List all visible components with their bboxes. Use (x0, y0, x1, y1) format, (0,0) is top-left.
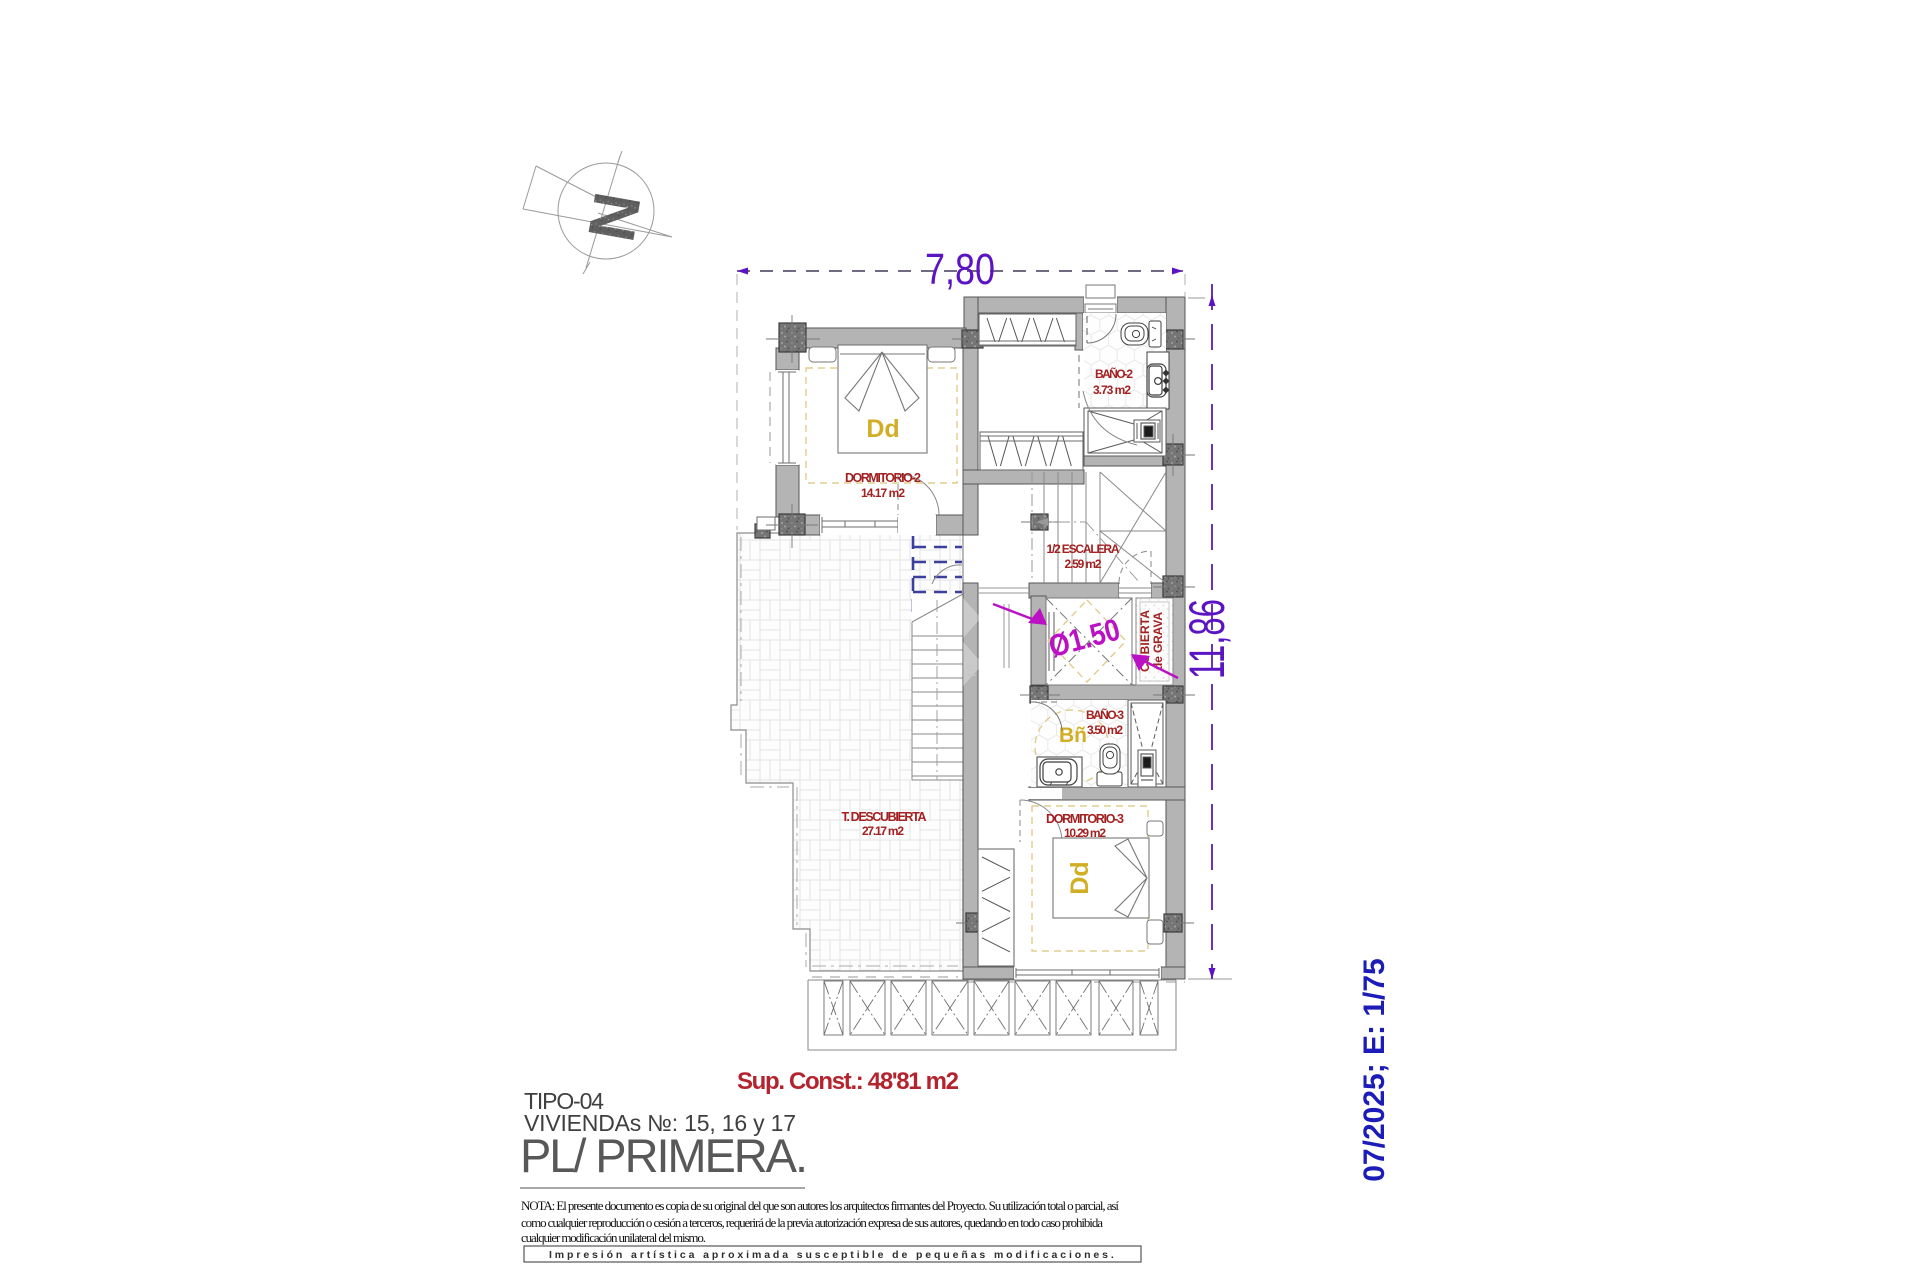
svg-text:3.50 m2: 3.50 m2 (1087, 723, 1123, 737)
svg-text:Impresión artística apro: Impresión artística aproximada susceptib… (549, 1249, 1115, 1261)
svg-text:1/2 ESCALERA: 1/2 ESCALERA (1047, 542, 1120, 556)
svg-text:Sup. Const.: 48'81 m2: Sup. Const.: 48'81 m2 (737, 1068, 959, 1095)
svg-text:Bñ: Bñ (1059, 724, 1087, 747)
svg-text:Dd: Dd (1066, 861, 1094, 894)
svg-text:DORMITORIO-2: DORMITORIO-2 (845, 471, 921, 485)
svg-text:2.59 m2: 2.59 m2 (1065, 557, 1102, 571)
svg-text:cualquier modificación unilate: cualquier modificación unilateral del mi… (521, 1230, 706, 1245)
svg-text:T. DESCUBIERTA: T. DESCUBIERTA (842, 810, 927, 824)
svg-text:11,86: 11,86 (1179, 599, 1235, 679)
svg-text:BAÑO-3: BAÑO-3 (1086, 707, 1124, 722)
svg-text:como cualquier reproducción o: como cualquier reproducción o cesión a t… (521, 1215, 1103, 1230)
svg-text:3.73 m2: 3.73 m2 (1093, 383, 1131, 397)
svg-text:07/2025; E: 1/75: 07/2025; E: 1/75 (1358, 958, 1391, 1182)
svg-text:7,80: 7,80 (925, 245, 995, 294)
svg-text:27.17 m2: 27.17 m2 (862, 824, 904, 838)
svg-text:10.29 m2: 10.29 m2 (1064, 826, 1106, 840)
svg-text:PL/ PRIMERA.: PL/ PRIMERA. (520, 1129, 808, 1182)
svg-text:DORMITORIO-3: DORMITORIO-3 (1046, 812, 1124, 826)
svg-text:Dd: Dd (866, 415, 899, 443)
svg-text:BAÑO-2: BAÑO-2 (1095, 366, 1133, 381)
svg-text:de GRAVA: de GRAVA (1151, 612, 1165, 670)
svg-text:E: E (966, 663, 977, 680)
svg-text:14.17 m2: 14.17 m2 (861, 486, 905, 500)
svg-text:NOTA: El presente documento es: NOTA: El presente documento es copia de … (521, 1198, 1119, 1213)
